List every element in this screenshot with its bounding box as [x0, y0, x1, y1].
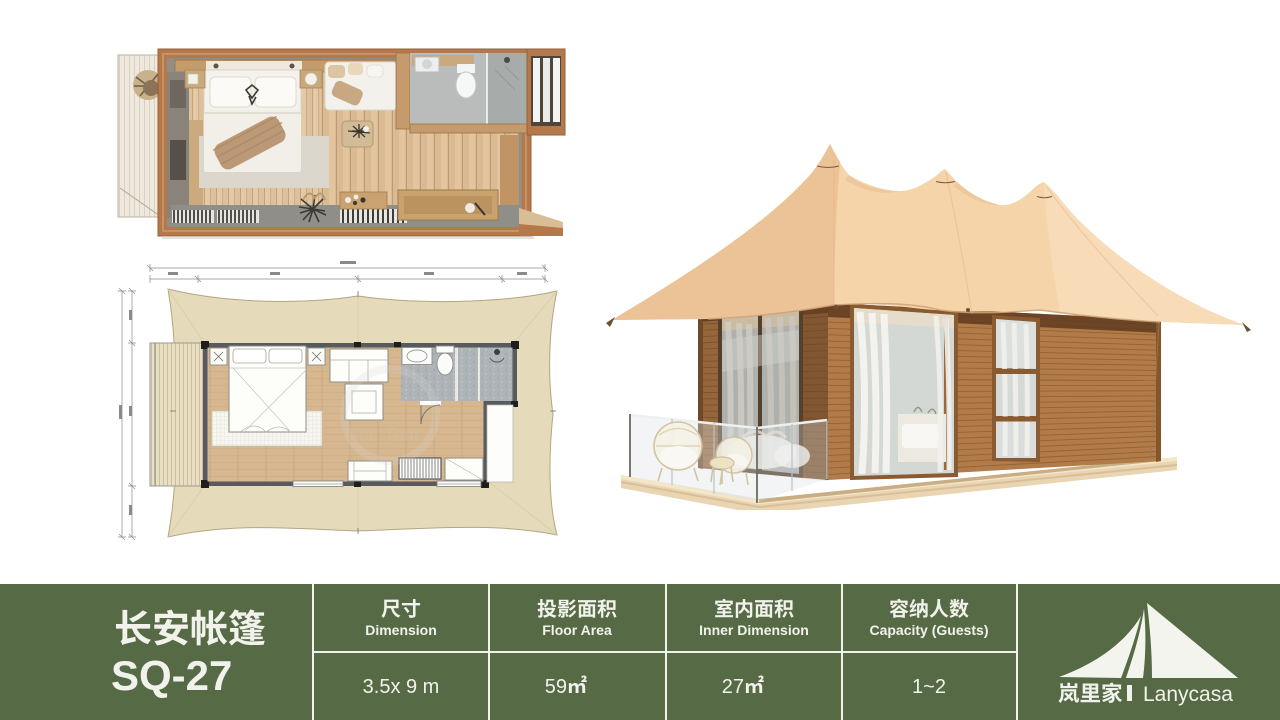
svg-text:Inner Dimension: Inner Dimension [699, 622, 809, 638]
svg-text:59: 59 [545, 676, 567, 698]
svg-text:Star Tent: Star Tent [347, 425, 419, 445]
svg-text:3.5x 9 m: 3.5x 9 m [363, 676, 440, 698]
svg-text:Dimension: Dimension [365, 622, 437, 638]
svg-text:Floor Area: Floor Area [542, 622, 612, 638]
svg-text:27: 27 [722, 676, 744, 698]
svg-text:1~2: 1~2 [912, 676, 946, 698]
svg-text:Capacity (Guests): Capacity (Guests) [869, 622, 988, 638]
svg-text:SQ-27: SQ-27 [111, 652, 232, 699]
svg-text:Lanycasa: Lanycasa [1143, 683, 1233, 706]
